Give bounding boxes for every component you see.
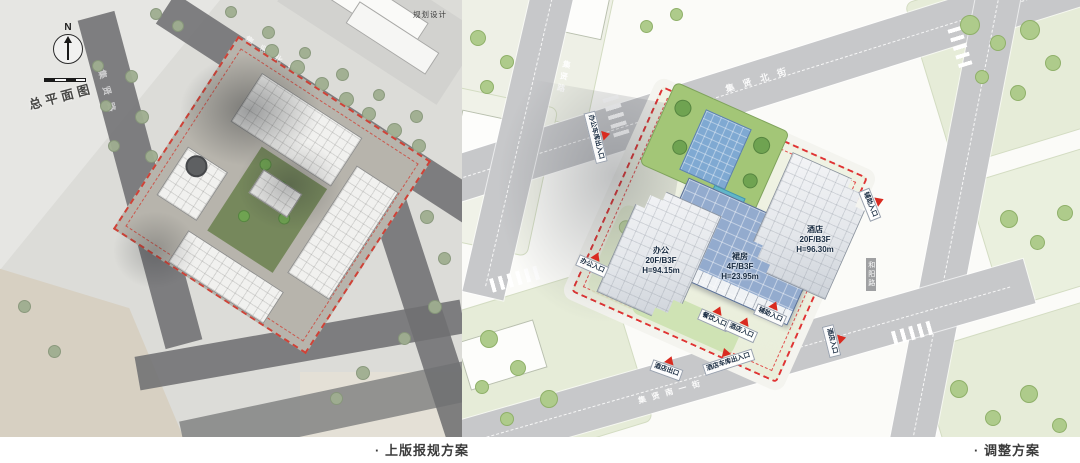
tree-icon	[135, 110, 149, 124]
tree-icon	[1000, 210, 1018, 228]
tree-icon	[225, 6, 237, 18]
tree-icon	[540, 390, 558, 408]
building-floors: 20F/B3F	[626, 256, 696, 266]
tree-icon	[299, 47, 311, 59]
tree-icon	[438, 252, 451, 265]
left-site-plan-image: 集贤北街 集贤路	[0, 0, 462, 437]
tree-icon	[262, 26, 275, 39]
office-tower-label: 办公 20F/B3F H=94.15m	[626, 246, 696, 276]
podium-label: 裙房 4F/B3F H=23.95m	[705, 252, 775, 282]
tree-icon	[672, 97, 694, 119]
tree-icon	[480, 80, 494, 94]
tree-icon	[420, 210, 434, 224]
tree-icon	[1030, 235, 1045, 250]
tree-icon	[18, 300, 31, 313]
hotel-tower-label: 酒店 20F/B3F H=96.30m	[780, 225, 850, 255]
tree-icon	[1057, 205, 1073, 221]
north-compass-icon: N	[50, 22, 86, 64]
tree-icon	[48, 345, 61, 358]
tree-icon	[150, 8, 162, 20]
tree-icon	[670, 8, 683, 21]
compass-needle-tip	[64, 36, 72, 43]
tree-icon	[125, 70, 138, 83]
building-use: 办公	[626, 246, 696, 256]
tree-icon	[428, 300, 442, 314]
tree-icon	[500, 55, 514, 69]
entrance-marker: 辅助入口	[858, 184, 889, 221]
building-floors: 20F/B3F	[780, 235, 850, 245]
tree-icon	[108, 140, 120, 152]
tree-icon	[475, 380, 489, 394]
building-use: 裙房	[705, 252, 775, 262]
compass-north-label: N	[50, 22, 86, 33]
tree-icon	[985, 410, 1001, 426]
tree-icon	[500, 412, 514, 426]
tree-icon	[410, 110, 423, 123]
tree-icon	[975, 70, 989, 84]
tree-icon	[640, 20, 653, 33]
building-height: H=96.30m	[780, 245, 850, 255]
tree-icon	[510, 360, 526, 376]
page: 集贤北街 集贤路	[0, 0, 1080, 463]
tree-icon	[750, 134, 772, 156]
building-height: H=23.95m	[705, 272, 775, 282]
tree-icon	[470, 30, 486, 46]
tree-icon	[740, 171, 760, 191]
building-floors: 4F/B3F	[705, 262, 775, 272]
left-caption: · 上版报规方案	[322, 440, 522, 459]
tree-icon	[1045, 55, 1061, 71]
tree-icon	[1052, 418, 1067, 433]
street-plate: 和阳路	[866, 258, 876, 291]
tree-icon	[990, 35, 1006, 51]
tree-icon	[373, 89, 385, 101]
tree-icon	[330, 392, 343, 405]
tree-icon	[172, 20, 184, 32]
tree-icon	[100, 100, 112, 112]
tree-icon	[1020, 20, 1040, 40]
tree-icon	[336, 68, 349, 81]
tree-icon	[1020, 385, 1038, 403]
tree-icon	[950, 380, 968, 398]
corner-note: 规划设计	[413, 9, 447, 20]
right-site-plan-image: 集贤北街 和阳路 集贤南一街 集贤路	[462, 0, 1080, 437]
tree-icon	[960, 15, 980, 35]
compass-dial	[53, 34, 83, 64]
tree-icon	[92, 60, 104, 72]
tree-icon	[398, 332, 411, 345]
tree-icon	[480, 330, 498, 348]
right-caption: · 调整方案	[927, 440, 1080, 459]
building-height: H=94.15m	[626, 266, 696, 276]
tree-icon	[356, 366, 370, 380]
tree-icon	[1010, 85, 1026, 101]
building-use: 酒店	[780, 225, 850, 235]
